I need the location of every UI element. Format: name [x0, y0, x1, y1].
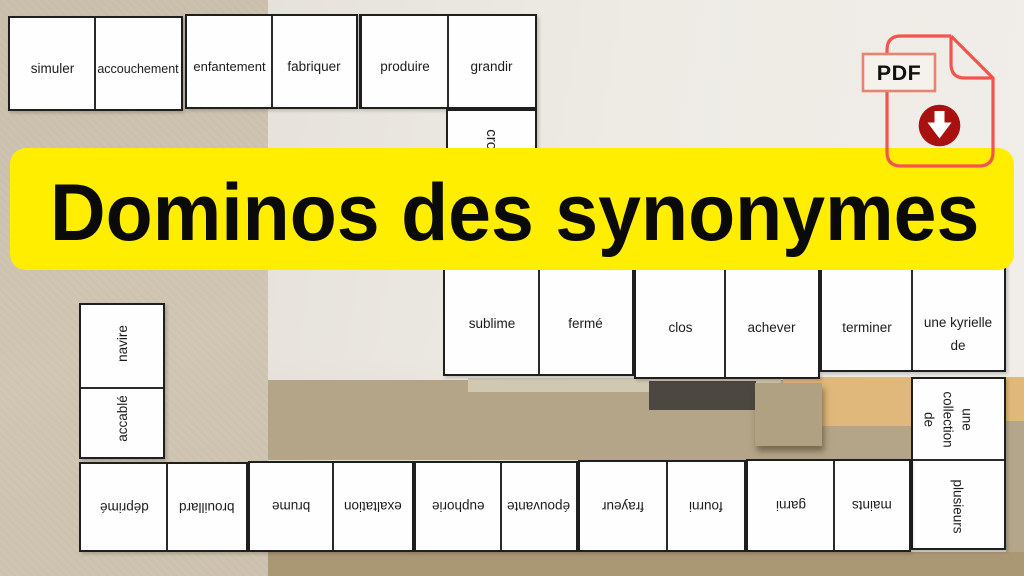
svg-text:PDF: PDF [877, 61, 922, 85]
